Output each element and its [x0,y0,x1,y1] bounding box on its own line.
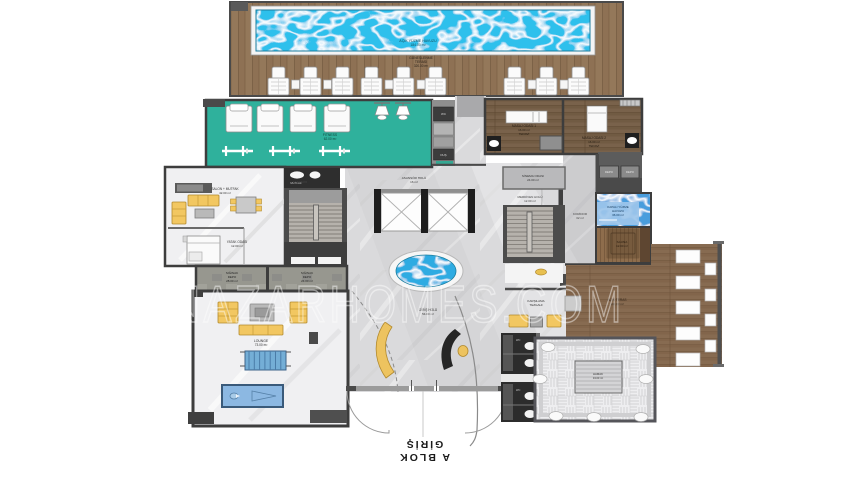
svg-text:12.00 m²: 12.00 m² [231,244,243,248]
svg-text:62.00 m²: 62.00 m² [324,137,337,141]
svg-text:GİRİŞ: GİRİŞ [405,438,444,451]
svg-text:36.00 m²: 36.00 m² [612,213,624,217]
svg-text:DEPO: DEPO [605,170,614,174]
svg-text:34.00 m²: 34.00 m² [593,376,603,380]
svg-text:WC: WC [516,338,520,342]
svg-text:WC: WC [441,112,447,116]
svg-text:TEDAVİ: TEDAVİ [519,131,530,136]
svg-text:73.00 m²: 73.00 m² [255,343,268,347]
svg-text:12.00 m²: 12.00 m² [616,244,628,248]
svg-text:ASANSÖR: ASANSÖR [293,180,309,184]
svg-text:16 m²: 16 m² [410,180,418,184]
svg-text:42.00 m²: 42.00 m² [219,191,231,195]
svg-text:A BLOK: A BLOK [398,451,450,463]
svg-text:HAMAK: HAMAK [593,372,603,376]
svg-text:NAZARHOMES.COM: NAZARHOMES.COM [170,276,625,334]
svg-text:DUŞ: DUŞ [440,153,446,157]
svg-text:DEPO: DEPO [626,170,635,174]
svg-text:32 m²: 32 m² [576,216,584,220]
svg-text:24.00 m²: 24.00 m² [527,178,539,182]
svg-text:184.00 m²: 184.00 m² [410,43,426,47]
svg-text:12.00 m²: 12.00 m² [524,199,536,203]
svg-text:TEDAVİ: TEDAVİ [589,143,600,148]
svg-text:WC: WC [516,388,520,392]
svg-text:320.00 m²: 320.00 m² [414,64,428,68]
